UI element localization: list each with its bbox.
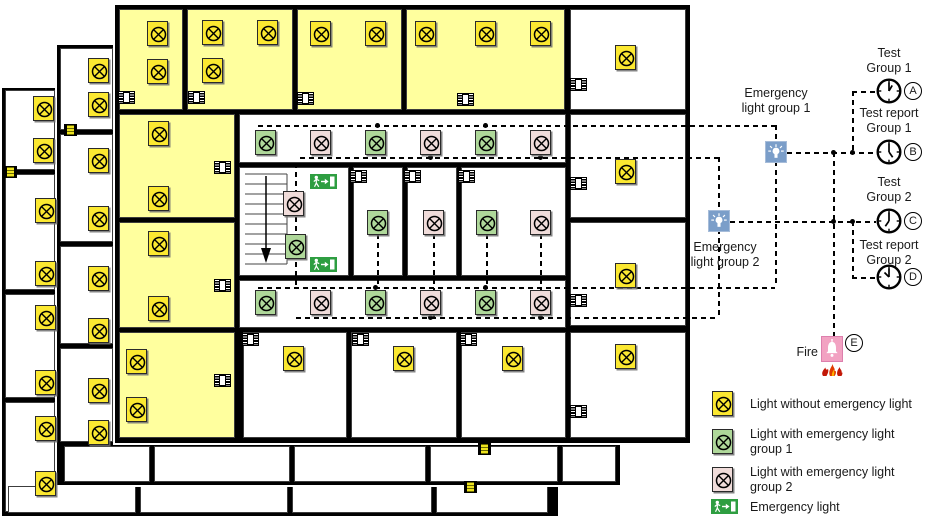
light-symbol-normal: [365, 21, 386, 46]
wiring-dashed-line: [258, 125, 775, 127]
light-symbol-group2: [283, 191, 304, 216]
door-icon: [404, 170, 421, 183]
light-symbol-group1: [285, 234, 306, 259]
room: [140, 486, 288, 513]
light-symbol-normal: [148, 186, 169, 211]
light-symbol-normal: [35, 471, 56, 496]
fire-alarm-icon: [821, 336, 843, 362]
light-symbol-normal: [35, 370, 56, 395]
fire-label: Fire: [758, 345, 818, 360]
yellow-door-icon: [464, 481, 477, 493]
light-symbol-group1: [255, 130, 276, 155]
light-symbol-normal: [257, 20, 278, 45]
clock-badge-D: D: [904, 268, 922, 286]
door-icon: [118, 91, 135, 104]
junction-dot: [850, 219, 855, 224]
light-symbol-normal: [35, 305, 56, 330]
light-symbol-normal: [415, 21, 436, 46]
light-symbol-normal: [88, 420, 109, 445]
clock-label-A: Test Group 1: [836, 46, 927, 76]
room: [154, 446, 290, 482]
emergency-light-group1-icon: [765, 141, 787, 163]
door-icon: [570, 177, 587, 190]
wiring-dashed-line: [377, 234, 379, 287]
test-clock-D: [875, 263, 903, 296]
light-symbol-group1: [365, 290, 386, 315]
light-symbol-normal: [148, 231, 169, 256]
legend-item-label: Light without emergency light: [750, 397, 927, 412]
light-symbol-normal: [615, 45, 636, 70]
emergency-group1-label: Emergency light group 1: [721, 86, 831, 116]
light-symbol-normal: [126, 397, 147, 422]
light-symbol-normal: [393, 346, 414, 371]
emergency-light-group2-icon: [708, 210, 730, 232]
clock-badge-B: B: [904, 143, 922, 161]
wiring-dashed-line: [852, 277, 876, 279]
light-symbol-group1: [255, 290, 276, 315]
door-icon: [214, 279, 231, 292]
light-symbol-group2: [310, 130, 331, 155]
light-symbol-normal: [202, 20, 223, 45]
light-symbol-normal: [35, 261, 56, 286]
junction-dot: [483, 123, 488, 128]
light-symbol-group2: [530, 290, 551, 315]
door-icon: [570, 294, 587, 307]
legend-item-label: Light with emergency light group 2: [750, 465, 927, 495]
light-symbol-group2: [310, 290, 331, 315]
light-symbol-normal: [33, 138, 54, 163]
door-icon: [457, 93, 474, 106]
light-symbol-normal: [148, 121, 169, 146]
light-symbol-group2: [530, 130, 551, 155]
door-icon: [570, 405, 587, 418]
room: [64, 446, 150, 482]
room: [294, 446, 426, 482]
fire-badge: E: [845, 334, 863, 352]
door-icon: [214, 374, 231, 387]
light-symbol-normal: [147, 21, 168, 46]
light-symbol-normal: [283, 346, 304, 371]
door-icon: [350, 170, 367, 183]
light-symbol-normal: [126, 349, 147, 374]
legend-item-label: Light with emergency light group 1: [750, 427, 927, 457]
light-symbol-normal: [615, 344, 636, 369]
light-symbol-group1: [475, 130, 496, 155]
light-symbol-normal: [148, 296, 169, 321]
wiring-dashed-line: [296, 317, 718, 319]
wiring-dashed-line: [833, 152, 835, 338]
light-symbol-normal: [502, 346, 523, 371]
room: [8, 486, 136, 513]
light-symbol-normal: [475, 21, 496, 46]
light-symbol-normal: [615, 159, 636, 184]
light-symbol-normal: [530, 21, 551, 46]
door-icon: [458, 170, 475, 183]
legend-light-emergency-group1: [712, 429, 733, 454]
wiring-dashed-line: [486, 234, 488, 287]
legend-item-label: Emergency light: [750, 500, 927, 515]
wiring-dashed-line: [718, 157, 720, 317]
room: [239, 114, 566, 163]
light-symbol-normal: [88, 58, 109, 83]
light-symbol-normal: [310, 21, 331, 46]
legend-light-without-emergency: [712, 391, 733, 416]
legend-light-emergency-group2: [712, 467, 733, 492]
junction-dot: [375, 123, 380, 128]
room: [430, 446, 558, 482]
light-symbol-normal: [35, 416, 56, 441]
light-symbol-normal: [615, 263, 636, 288]
light-symbol-normal: [88, 318, 109, 343]
clock-label-C: Test Group 2: [836, 175, 927, 205]
emergency-group2-label: Emergency light group 2: [670, 240, 780, 270]
light-symbol-normal: [88, 206, 109, 231]
emergency-exit-sign: [310, 174, 337, 194]
door-icon: [242, 333, 259, 346]
yellow-door-icon: [64, 124, 77, 136]
legend-emergency-exit-sign: [711, 499, 738, 519]
test-clock-C: [875, 207, 903, 240]
light-symbol-normal: [88, 378, 109, 403]
room: [119, 222, 235, 328]
door-icon: [188, 91, 205, 104]
light-symbol-normal: [202, 58, 223, 83]
emergency-exit-sign: [310, 257, 337, 277]
wiring-dashed-line: [852, 91, 876, 93]
wiring-dashed-line: [300, 157, 718, 159]
yellow-door-icon: [4, 166, 17, 178]
light-symbol-group2: [420, 130, 441, 155]
emergency-lighting-diagram: Emergency light group 1 Emergency light …: [0, 0, 927, 519]
door-icon: [570, 78, 587, 91]
junction-dot: [850, 150, 855, 155]
light-symbol-group2: [530, 210, 551, 235]
door-icon: [352, 333, 369, 346]
door-icon: [214, 161, 231, 174]
light-symbol-normal: [88, 266, 109, 291]
clock-badge-C: C: [904, 212, 922, 230]
clock-label-B: Test report Group 1: [836, 106, 927, 136]
fire-flames-icon: [820, 361, 846, 382]
light-symbol-group1: [365, 130, 386, 155]
clock-badge-A: A: [904, 82, 922, 100]
door-icon: [297, 92, 314, 105]
room: [292, 486, 432, 513]
light-symbol-normal: [88, 148, 109, 173]
junction-dot: [831, 219, 836, 224]
room: [436, 486, 548, 513]
junction-dot: [831, 150, 836, 155]
test-clock-B: [875, 138, 903, 171]
light-symbol-group1: [476, 210, 497, 235]
light-symbol-normal: [88, 92, 109, 117]
light-symbol-normal: [147, 59, 168, 84]
light-symbol-normal: [35, 198, 56, 223]
light-symbol-group1: [475, 290, 496, 315]
light-symbol-group1: [367, 210, 388, 235]
room: [562, 446, 616, 482]
wiring-dashed-line: [295, 163, 297, 285]
door-icon: [460, 333, 477, 346]
light-symbol-group2: [420, 290, 441, 315]
light-symbol-group2: [423, 210, 444, 235]
yellow-door-icon: [478, 443, 491, 455]
wiring-dashed-line: [258, 287, 775, 289]
light-symbol-normal: [33, 96, 54, 121]
